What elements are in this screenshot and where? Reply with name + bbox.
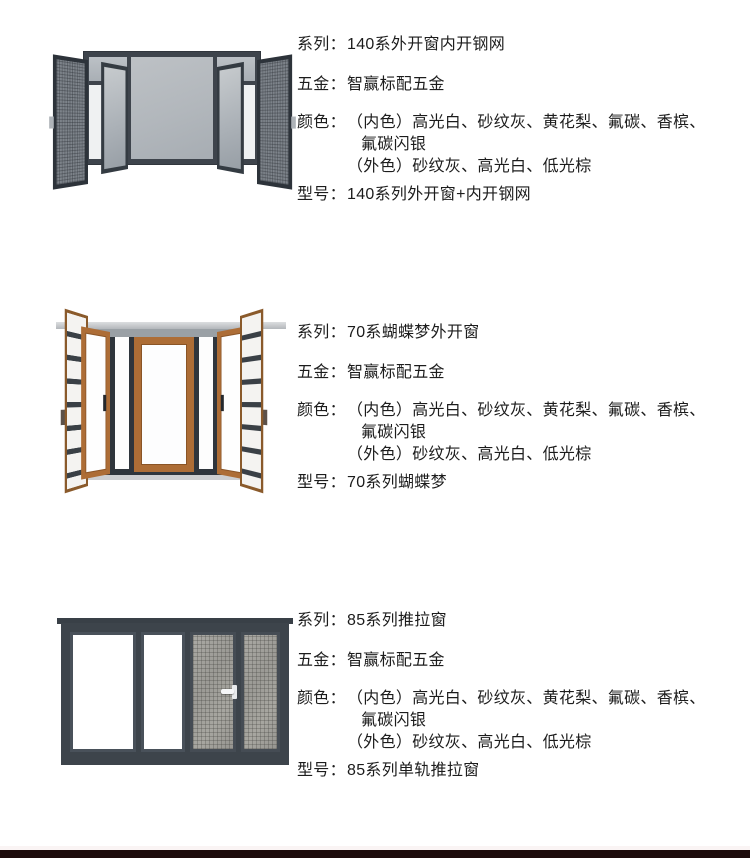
spec-value-hardware: 智赢标配五金 — [347, 650, 445, 672]
spec-value-model: 85系列单轨推拉窗 — [347, 760, 480, 782]
spec-label-hardware: 五金： — [297, 74, 347, 96]
spec-label-series: 系列： — [297, 322, 347, 344]
spec-row-model: 型号： 70系列蝴蝶梦 — [297, 472, 447, 494]
product-section-85: 系列： 85系列推拉窗 五金： 智赢标配五金 颜色： （内色）高光白、砂纹灰、黄… — [0, 576, 750, 850]
spec-row-series: 系列： 70系蝴蝶梦外开窗 — [297, 322, 480, 344]
spec-value-series: 140系外开窗内开钢网 — [347, 34, 505, 56]
product-photo-85-sliding-window — [55, 612, 295, 774]
spec-row-model: 型号： 140系列外开窗+内开钢网 — [297, 184, 531, 206]
spec-label-model: 型号： — [297, 184, 347, 206]
spec-label-model: 型号： — [297, 472, 347, 494]
spec-value-series: 70系蝴蝶梦外开窗 — [347, 322, 480, 344]
spec-value-color-line3: （外色）砂纹灰、高光白、低光棕 — [347, 156, 706, 178]
spec-row-model: 型号： 85系列单轨推拉窗 — [297, 760, 480, 782]
product-section-140: 系列： 140系外开窗内开钢网 五金： 智赢标配五金 颜色： （内色）高光白、砂… — [0, 0, 750, 288]
spec-value-color-line1: （内色）高光白、砂纹灰、黄花梨、氟碳、香槟、 — [347, 688, 706, 710]
spec-row-series: 系列： 85系列推拉窗 — [297, 610, 447, 632]
window-sill — [84, 475, 244, 480]
handle-icon — [232, 685, 237, 699]
spec-row-hardware: 五金： 智赢标配五金 — [297, 74, 445, 96]
bottom-bar — [0, 850, 750, 858]
spec-value-model: 140系列外开窗+内开钢网 — [347, 184, 531, 206]
mesh-screen-right — [257, 54, 292, 189]
spec-row-color: 颜色： （内色）高光白、砂纹灰、黄花梨、氟碳、香槟、 氟碳闪银 （外色）砂纹灰、… — [297, 400, 706, 466]
spec-value-color-line2: 氟碳闪银 — [347, 710, 706, 732]
spec-row-color: 颜色： （内色）高光白、砂纹灰、黄花梨、氟碳、香槟、 氟碳闪银 （外色）砂纹灰、… — [297, 112, 706, 178]
catalog-page: 系列： 140系外开窗内开钢网 五金： 智赢标配五金 颜色： （内色）高光白、砂… — [0, 0, 750, 858]
spec-label-series: 系列： — [297, 34, 347, 56]
spec-value-color-line2: 氟碳闪银 — [347, 134, 706, 156]
spec-label-hardware: 五金： — [297, 650, 347, 672]
spec-value-series: 85系列推拉窗 — [347, 610, 447, 632]
window-frame — [61, 623, 289, 765]
sliding-glass-pane-small — [141, 632, 185, 752]
narrow-glass-pane — [196, 337, 216, 472]
casement-sash-right — [217, 62, 244, 174]
spec-value-color-line2: 氟碳闪银 — [347, 422, 706, 444]
product-section-70: 系列： 70系蝴蝶梦外开窗 五金： 智赢标配五金 颜色： （内色）高光白、砂纹灰… — [0, 288, 750, 576]
spec-label-color: 颜色： — [297, 688, 347, 710]
spec-row-series: 系列： 140系外开窗内开钢网 — [297, 34, 505, 56]
spec-value-hardware: 智赢标配五金 — [347, 74, 445, 96]
window-frame — [90, 337, 238, 475]
spec-value-color-line3: （外色）砂纹灰、高光白、低光棕 — [347, 444, 706, 466]
spec-label-model: 型号： — [297, 760, 347, 782]
casement-sash-left — [101, 62, 128, 174]
spec-value-hardware: 智赢标配五金 — [347, 362, 445, 384]
spec-row-hardware: 五金： 智赢标配五金 — [297, 650, 445, 672]
spec-value-color-line3: （外色）砂纹灰、高光白、低光棕 — [347, 732, 706, 754]
spec-value-color-line1: （内色）高光白、砂纹灰、黄花梨、氟碳、香槟、 — [347, 400, 706, 422]
center-glass-pane — [134, 337, 194, 472]
spec-value-model: 70系列蝴蝶梦 — [347, 472, 447, 494]
mesh-screen-panel — [241, 632, 280, 752]
barred-screen-right — [240, 309, 263, 494]
product-photo-140-casement-window — [50, 45, 295, 225]
product-photo-70-butterfly-window — [48, 308, 296, 508]
mesh-screen-left — [53, 54, 88, 189]
spec-label-series: 系列： — [297, 610, 347, 632]
spec-row-hardware: 五金： 智赢标配五金 — [297, 362, 445, 384]
spec-value-color-line1: （内色）高光白、砂纹灰、黄花梨、氟碳、香槟、 — [347, 112, 706, 134]
wood-casement-sash-left — [81, 326, 110, 479]
center-glass-pane — [131, 57, 213, 159]
spec-label-hardware: 五金： — [297, 362, 347, 384]
narrow-glass-pane — [112, 337, 132, 472]
spec-label-color: 颜色： — [297, 400, 347, 422]
sliding-glass-pane-large — [70, 632, 136, 752]
mesh-screen-panel — [190, 632, 236, 752]
spec-label-color: 颜色： — [297, 112, 347, 134]
spec-row-color: 颜色： （内色）高光白、砂纹灰、黄花梨、氟碳、香槟、 氟碳闪银 （外色）砂纹灰、… — [297, 688, 706, 754]
